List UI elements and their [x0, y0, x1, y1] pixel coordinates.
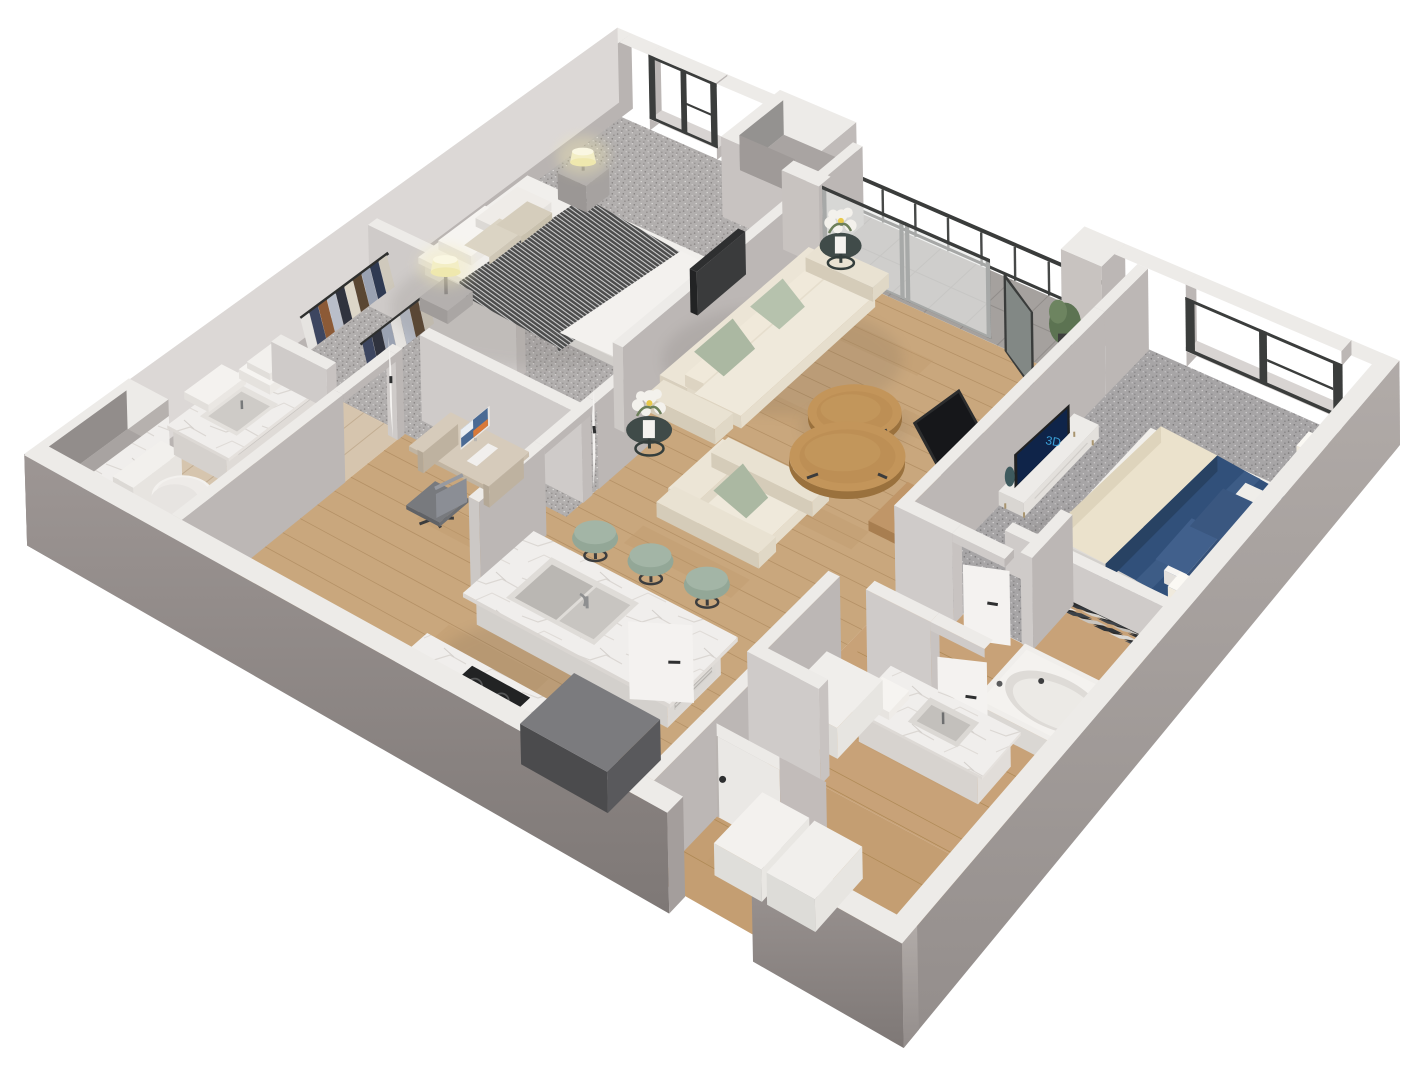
svg-text:3D: 3D: [1044, 433, 1062, 450]
